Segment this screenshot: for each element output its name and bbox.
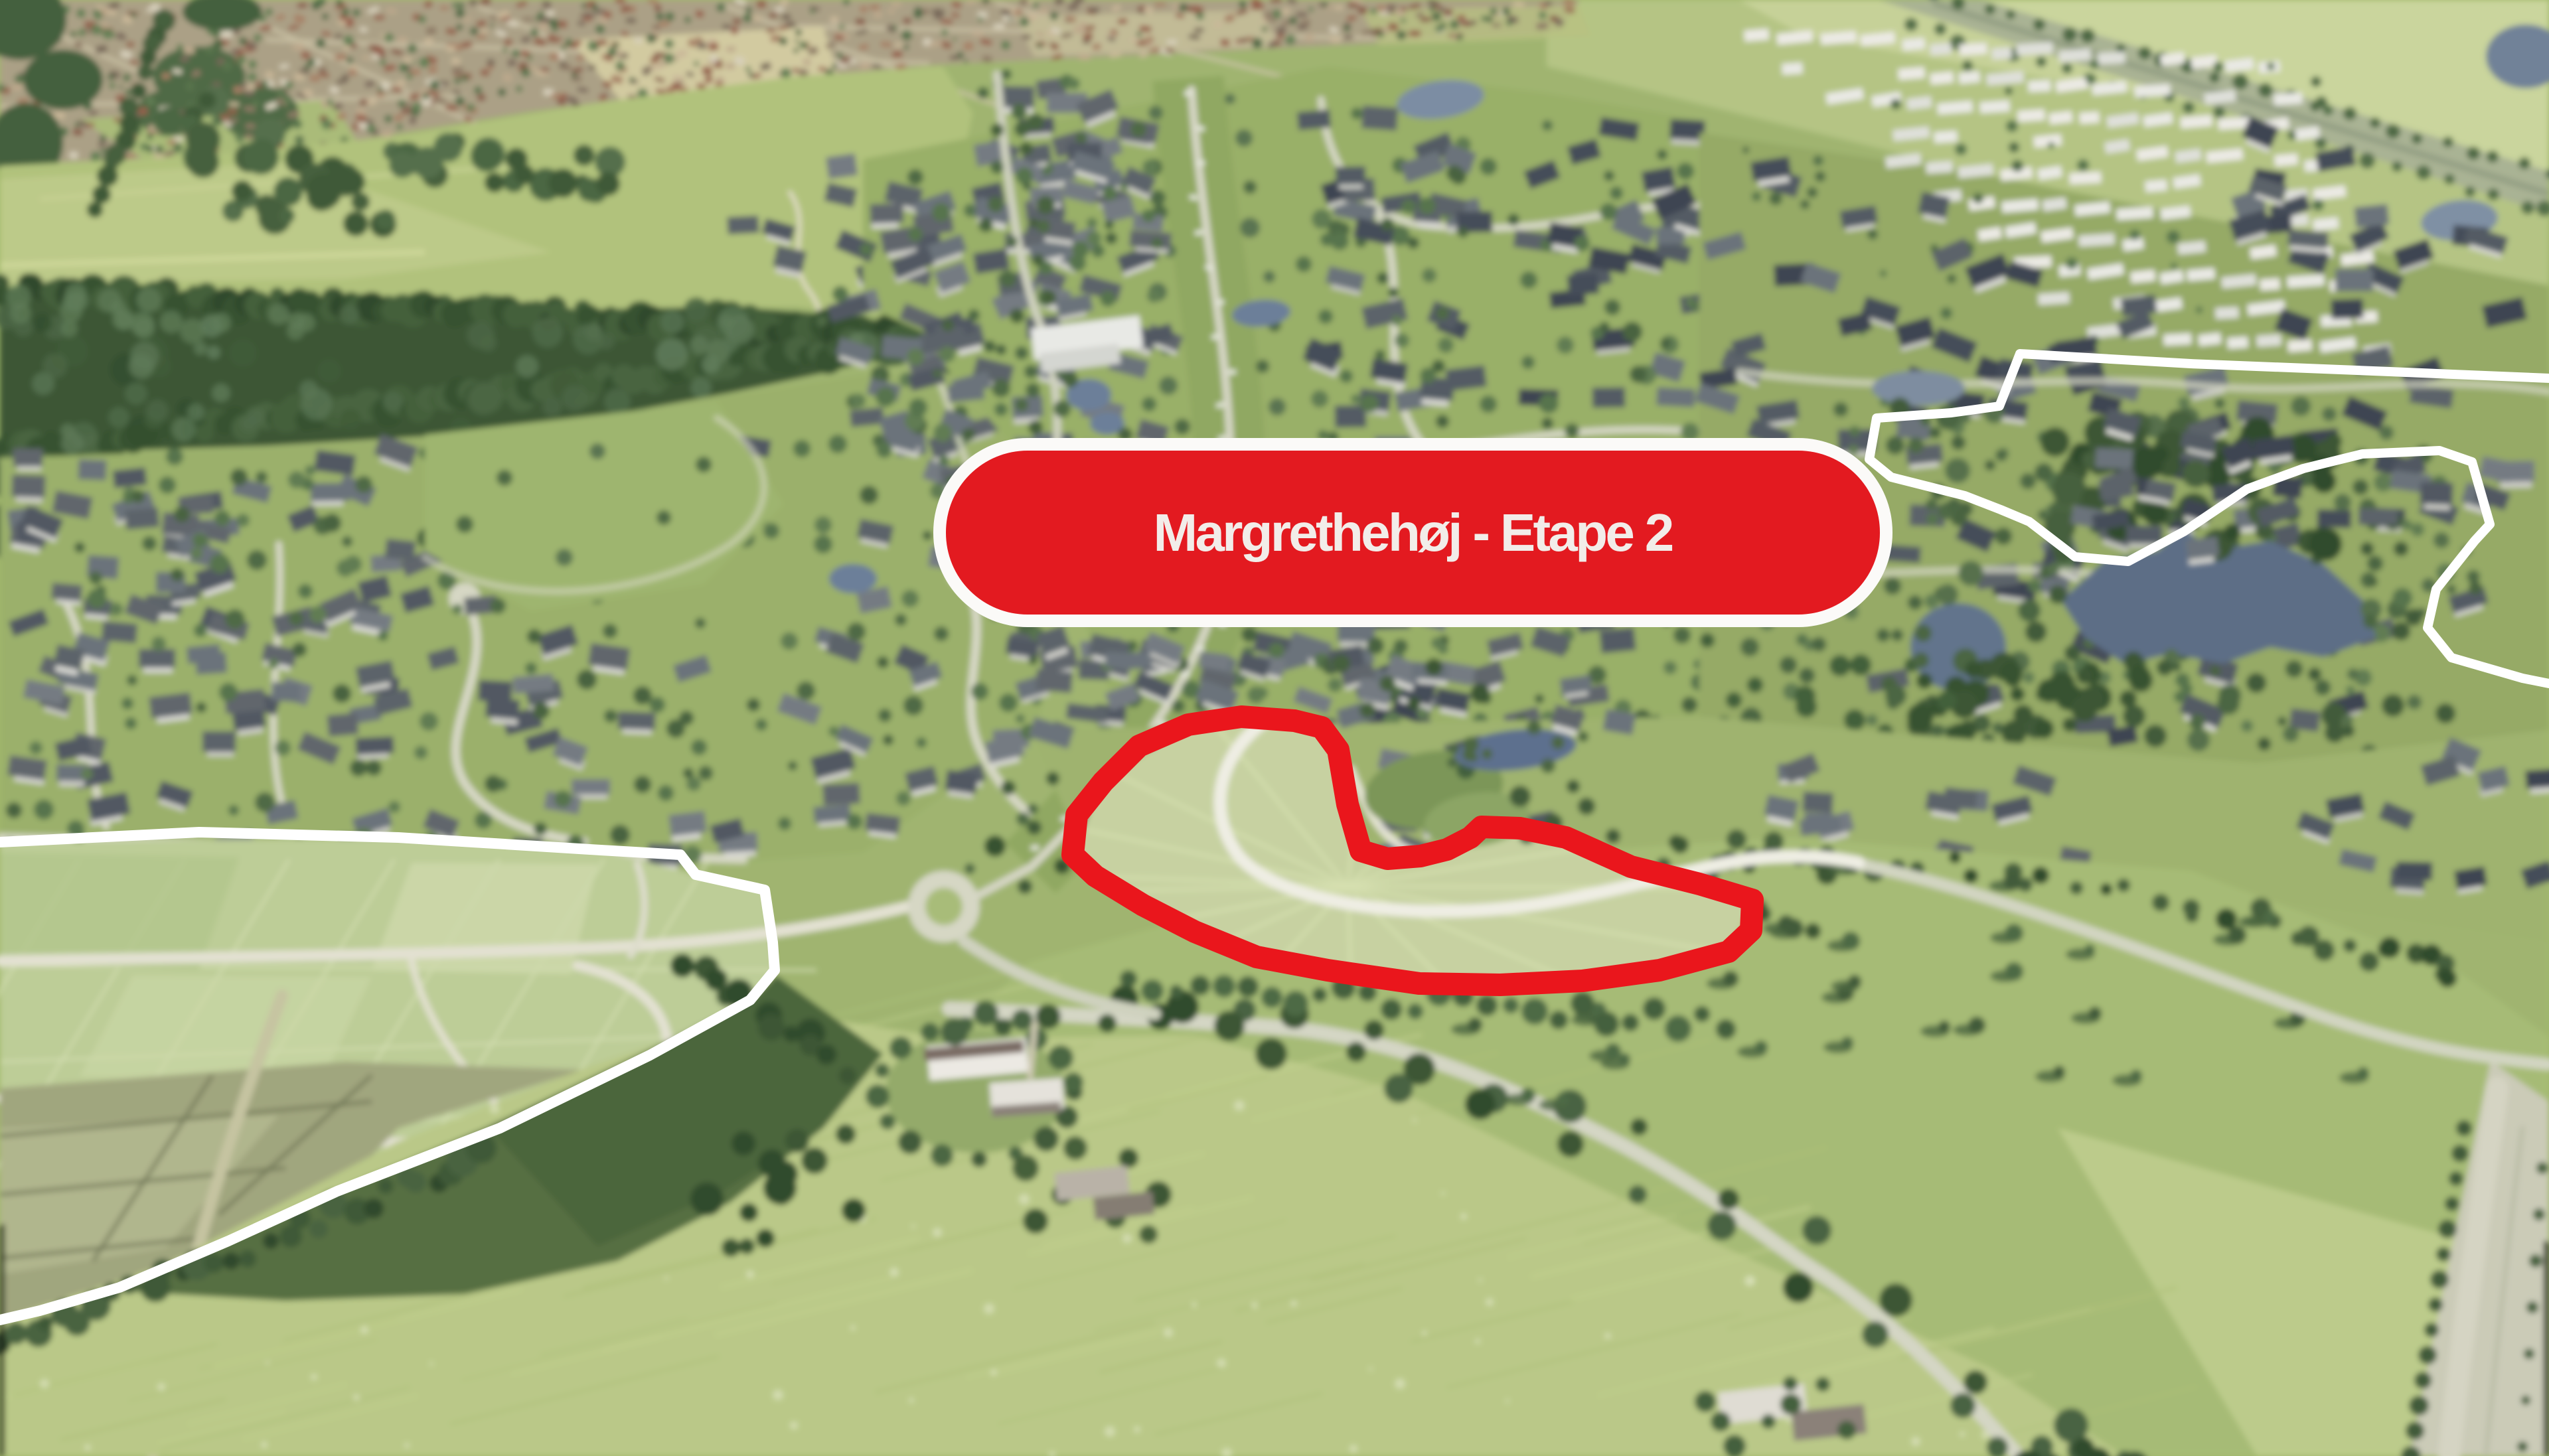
svg-text:Margrethehøj - Etape 2: Margrethehøj - Etape 2	[1154, 503, 1673, 562]
